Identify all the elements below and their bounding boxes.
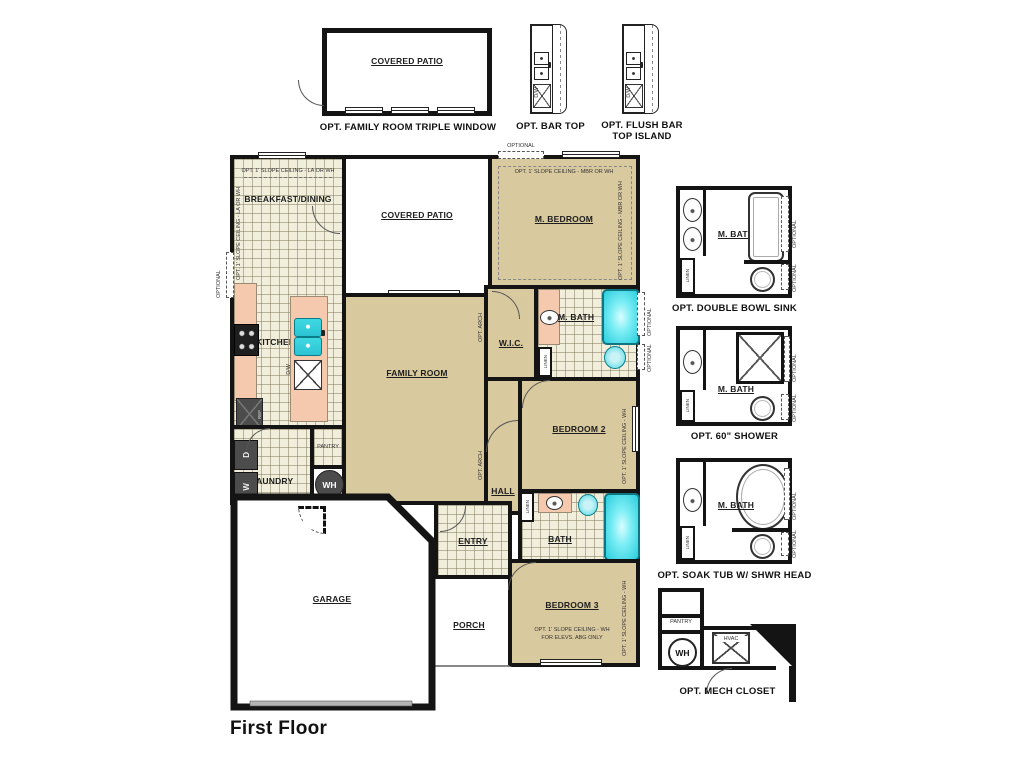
faucet <box>640 62 643 68</box>
angled-wall <box>750 624 796 670</box>
optional-label: OPTIONAL <box>792 530 798 558</box>
sink <box>540 310 559 325</box>
dishwasher-label: D/W <box>626 87 632 98</box>
optional-window-strip <box>226 252 234 298</box>
linen-closet: LINEN <box>680 390 695 422</box>
sink <box>626 52 641 65</box>
m-bedroom-label: M. BEDROOM <box>488 214 640 224</box>
triple-window-option-outline <box>322 28 492 116</box>
optional-label: OPTIONAL <box>647 342 653 372</box>
optional-window-strip <box>637 292 645 336</box>
family-room-label: FAMILY ROOM <box>342 368 492 378</box>
window <box>258 152 306 159</box>
optional-label: OPTIONAL <box>792 200 798 248</box>
optional-label: OPTIONAL <box>792 392 798 422</box>
flush-bar-caption-line2: TOP ISLAND <box>592 131 692 142</box>
optional-window-strip <box>637 344 645 370</box>
bar-top-caption: OPT. BAR TOP <box>498 121 603 132</box>
porch-label: PORCH <box>426 620 512 630</box>
m-bath-label: M. BATH <box>698 500 774 510</box>
double-bowl-caption: OPT. DOUBLE BOWL SINK <box>652 303 817 314</box>
soak-tub-caption: OPT. SOAK TUB W/ SHWR HEAD <box>642 570 827 581</box>
flush-bar-caption-line1: OPT. FLUSH BAR <box>592 120 692 131</box>
window <box>562 151 620 158</box>
bathtub <box>748 192 784 262</box>
optional-window-strip <box>781 532 789 556</box>
sink <box>683 198 702 222</box>
window <box>391 107 429 114</box>
linen-closet: LINEN <box>520 492 534 522</box>
optional-window-strip <box>498 151 544 159</box>
island-sink <box>294 318 322 337</box>
sink <box>534 52 549 65</box>
shower-caption: OPT. 60" SHOWER <box>652 431 817 442</box>
window <box>540 659 602 666</box>
toilet <box>750 267 775 292</box>
island-sink <box>294 337 322 356</box>
optional-window-strip <box>781 264 789 290</box>
flush-bar-counter <box>644 24 659 114</box>
optional-label: OPTIONAL <box>498 143 544 149</box>
hall-label: HALL <box>484 486 522 496</box>
triple-window-caption: OPT. FAMILY ROOM TRIPLE WINDOW <box>306 122 510 133</box>
sink <box>683 350 702 374</box>
mech-closet-caption: OPT. MECH CLOSET <box>645 686 810 697</box>
optional-label: OPTIONAL <box>792 472 798 520</box>
ceiling-dash-line <box>244 177 332 178</box>
sink <box>534 67 549 80</box>
garage-label: GARAGE <box>232 594 432 604</box>
optional-window-strip <box>781 394 789 420</box>
toilet <box>750 534 775 559</box>
dishwasher-label: D/W <box>534 87 540 98</box>
covered-patio-label: COVERED PATIO <box>342 210 492 220</box>
faucet <box>548 62 551 68</box>
water-heater-icon: WH <box>668 638 697 667</box>
window <box>632 406 639 452</box>
wic-label: W.I.C. <box>484 338 538 348</box>
dishwasher-label: D/W <box>286 364 292 375</box>
toilet <box>750 396 775 421</box>
for-elevs-note: FOR ELEVS. ABG ONLY <box>504 635 640 641</box>
door-arc <box>298 80 324 106</box>
slope-ceiling-note: OPT. 1' SLOPE CEILING - MBR OR WH <box>500 169 628 175</box>
sink <box>546 496 563 510</box>
optional-label: OPTIONAL <box>792 262 798 292</box>
optional-label: OPTIONAL <box>647 294 653 336</box>
hvac-label: HVAC <box>714 636 748 642</box>
kitchen-island <box>290 296 328 422</box>
optional-label: OPTIONAL <box>216 254 222 298</box>
optional-window-strip <box>784 336 790 382</box>
slope-ceiling-note-vertical: OPT. 1' SLOPE CEILING - MBR OR WH <box>618 180 624 280</box>
slope-ceiling-note-vertical: OPT. 1' SLOPE CEILING - LA OR WH <box>236 192 242 280</box>
window <box>437 107 475 114</box>
dishwasher-box <box>294 360 322 390</box>
pantry-label: PANTRY <box>310 444 346 450</box>
covered-patio-room <box>342 155 492 297</box>
m-bath-label: M. BATH <box>558 312 594 322</box>
shower <box>736 332 784 384</box>
linen-closet: LINEN <box>538 347 552 377</box>
sink <box>626 67 641 80</box>
slope-ceiling-note: OPT. 1' SLOPE CEILING - WH <box>504 627 640 633</box>
bath-label: BATH <box>520 534 600 544</box>
optional-label: OPTIONAL <box>792 340 798 382</box>
page-title: First Floor <box>230 718 327 740</box>
bar-top-counter <box>552 24 567 114</box>
linen-closet: LINEN <box>680 526 695 560</box>
family-room <box>342 293 492 505</box>
bedroom3-label: BEDROOM 3 <box>504 600 640 610</box>
entry-label: ENTRY <box>434 536 512 546</box>
m-bath-label: M. BATH <box>698 384 774 394</box>
slope-ceiling-note-vertical: OPT. 1' SLOPE CEILING - WH <box>622 568 628 656</box>
pantry-label: PANTRY <box>658 619 704 625</box>
faucet <box>321 330 325 336</box>
toilet <box>578 494 598 516</box>
garage-outline <box>228 493 436 715</box>
optional-window-strip <box>784 468 790 520</box>
breakfast-dining-label: BREAKFAST/DINING <box>230 194 346 204</box>
slope-ceiling-note-vertical: OPT. 1' SLOPE CEILING - WH <box>622 392 628 484</box>
bathtub <box>604 493 640 561</box>
floor-plan: COVERED PATIO OPT. FAMILY ROOM TRIPLE WI… <box>0 0 1024 768</box>
bathtub <box>602 289 640 345</box>
linen-closet: LINEN <box>680 258 695 294</box>
toilet <box>604 346 626 369</box>
optional-window-strip <box>781 196 789 252</box>
covered-patio-label: COVERED PATIO <box>322 56 492 66</box>
soak-tub <box>736 464 790 530</box>
window <box>345 107 383 114</box>
slope-ceiling-note: OPT. 1' SLOPE CEILING - LA OR WH <box>240 168 336 174</box>
